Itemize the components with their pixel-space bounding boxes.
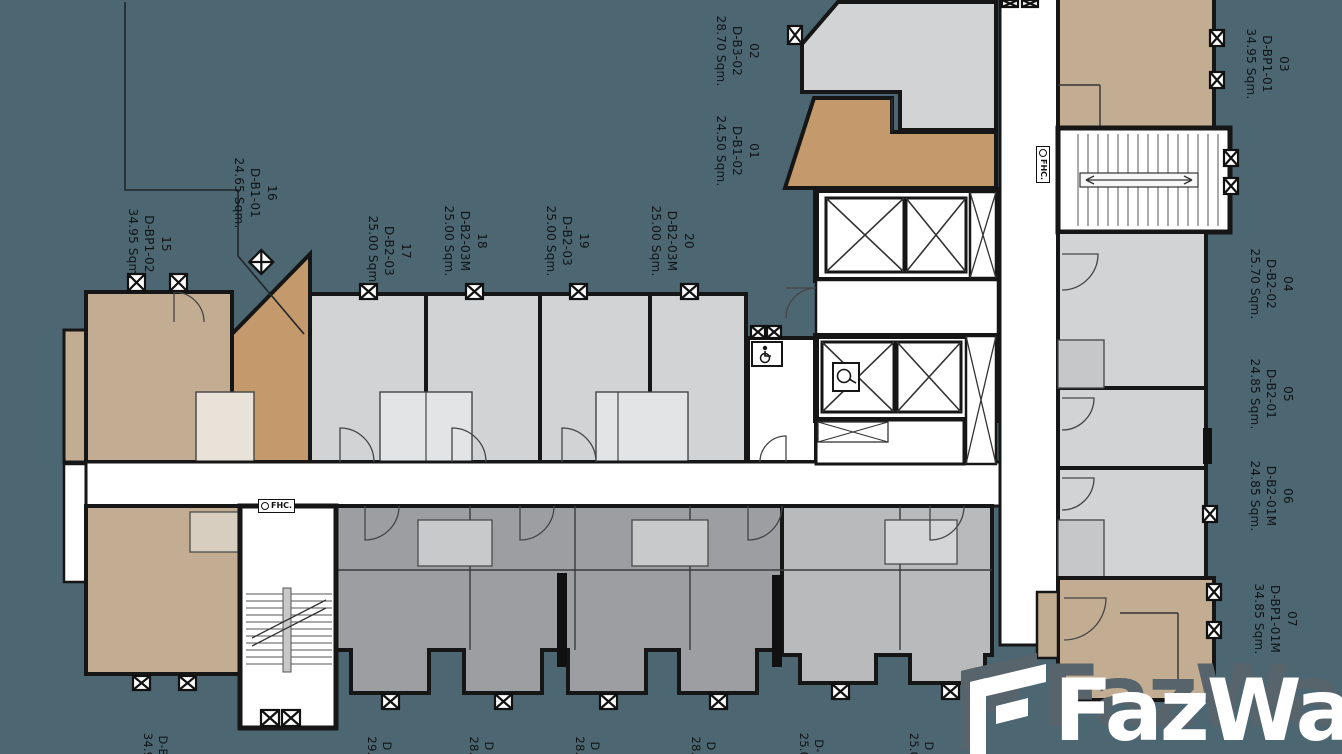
unit-label-15: 15D-BP1-0234.95 Sqm. [125, 198, 175, 290]
valve-icon [261, 502, 269, 510]
unit-label-06: 06D-B2-01M24.85 Sqm. [1247, 452, 1297, 540]
unit-label-01: 01D-B1-0224.50 Sqm. [713, 108, 763, 194]
unit-label-17: 17D-B2-0325.00 Sqm. [365, 208, 415, 294]
bottom-label-14: D-B34.9 [140, 726, 170, 754]
unit-label-18: 18D-B2-03M25.00 Sqm. [441, 198, 491, 284]
fire-hose-cabinet-label-2: FHC. [1036, 146, 1050, 183]
floor-plan-page: FazWaz FazWaz 02D-B3-0228.70 Sqm. 01D-B1… [0, 0, 1342, 754]
unit-label-16: 16D-B1-0124.65 Sqm. [231, 150, 281, 236]
floor-plan-drawing: FazWaz FazWaz [0, 0, 1342, 754]
unit-label-03: 03D-BP1-0134.95 Sqm. [1243, 18, 1293, 110]
wheelchair-icon [752, 342, 782, 366]
bottom-label-08: D25.0 [906, 726, 936, 754]
unit-label-05: 05D-B2-0124.85 Sqm. [1247, 350, 1297, 438]
unit-label-19: 19D-B2-0325.00 Sqm. [543, 198, 593, 284]
stairwell-bottom-left [240, 506, 336, 728]
fire-hose-reel-icon [833, 363, 859, 391]
fazwaz-wordmark: FazWaz [1054, 661, 1342, 754]
valve-icon [1039, 149, 1047, 157]
bottom-label-11: D28. [572, 726, 602, 754]
fazwaz-logo-mark [961, 653, 1046, 754]
unit-label-04: 04D-B2-0225.70 Sqm. [1247, 240, 1297, 328]
unit-label-02: 02D-B3-0228.70 Sqm. [713, 8, 763, 94]
elevator-core [816, 190, 998, 464]
right-wing-units [1037, 0, 1230, 700]
stairwell-top-right [1058, 128, 1230, 232]
unit-label-20: 20D-B2-03M25.00 Sqm. [648, 198, 698, 284]
bottom-label-12: D28. [466, 726, 496, 754]
unit-label-07: 07D-BP1-01M34.85 Sqm. [1251, 572, 1301, 666]
bottom-label-10: D28. [688, 726, 718, 754]
bottom-label-09: D-25.0 [796, 726, 826, 754]
bottom-label-13: D29. [364, 726, 394, 754]
fire-hose-cabinet-label: FHC. [258, 499, 295, 513]
units-01-02 [785, 2, 996, 188]
